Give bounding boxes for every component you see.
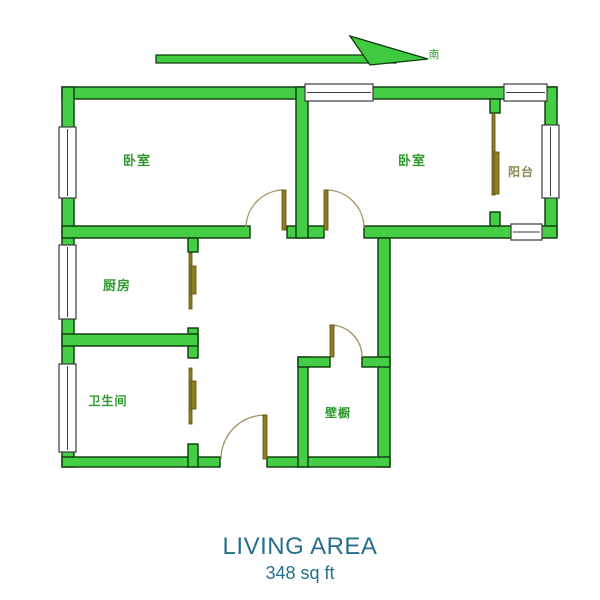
wall-kitchen-bath-divider <box>62 334 198 346</box>
floor-plan-canvas: 南卧室卧室阳台厨房卫生间壁橱 <box>0 0 600 600</box>
door-leaf-bedroom-right <box>324 190 328 230</box>
wall-balcony-divider-bottom-stub <box>490 212 500 226</box>
wall-closet-top-right <box>362 357 390 367</box>
room-label-balcony: 阳台 <box>508 164 534 179</box>
wall-bottom-right <box>267 457 390 467</box>
door-leaf-balcony-handle <box>494 152 499 194</box>
door-leaf-bathroom-handle <box>191 381 196 409</box>
compass-arrow-tail <box>156 55 396 63</box>
room-label-bedroom-right: 卧室 <box>398 153 426 169</box>
wall-mid-left <box>62 226 250 238</box>
wall-bedroom-divider <box>296 87 308 238</box>
door-leaf-entry <box>263 415 267 459</box>
door-leaf-closet <box>330 325 334 357</box>
room-label-closet: 壁橱 <box>325 405 351 420</box>
wall-balcony-divider-top-stub <box>490 99 500 113</box>
wall-closet-left <box>298 357 308 467</box>
compass-direction-label: 南 <box>429 48 440 61</box>
living-area-value: 348 sq ft <box>0 561 600 585</box>
wall-bathroom-right-bottom <box>188 444 198 467</box>
living-area-title: LIVING AREA <box>0 533 600 561</box>
door-arc-closet <box>330 325 362 357</box>
door-arc-bedroom-left <box>246 190 284 228</box>
door-leaf-bedroom-left <box>282 190 286 230</box>
wall-lower-right <box>378 238 390 467</box>
room-label-bathroom: 卫生间 <box>88 393 127 408</box>
wall-closet-top-left <box>298 357 330 367</box>
room-label-bedroom-left: 卧室 <box>123 153 151 169</box>
door-arc-entry <box>221 415 265 459</box>
living-area-caption: LIVING AREA 348 sq ft <box>0 533 600 585</box>
wall-kitchen-right-stub <box>188 238 198 252</box>
room-label-kitchen: 厨房 <box>103 278 131 294</box>
door-leaf-kitchen-handle <box>191 266 196 294</box>
door-arc-bedroom-right <box>326 190 364 228</box>
